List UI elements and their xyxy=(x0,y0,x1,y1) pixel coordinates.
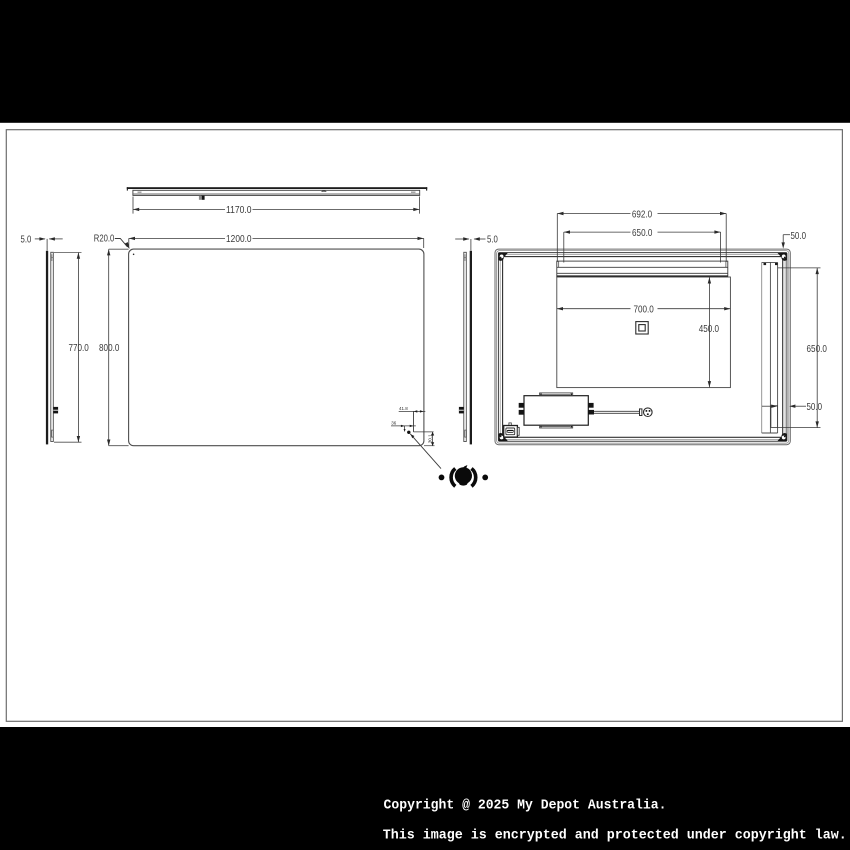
svg-text:1170.0: 1170.0 xyxy=(226,205,252,216)
svg-text:30.1: 30.1 xyxy=(428,434,433,443)
svg-text:Copyright @ 2025 My Depot Aust: Copyright @ 2025 My Depot Australia. xyxy=(384,799,667,814)
svg-text:770.0: 770.0 xyxy=(68,343,89,354)
svg-text:650.0: 650.0 xyxy=(632,228,653,239)
svg-text:R20.0: R20.0 xyxy=(94,233,115,244)
svg-text:50.0: 50.0 xyxy=(807,402,823,413)
svg-text:800.0: 800.0 xyxy=(99,343,120,354)
svg-text:This image is encrypted and pr: This image is encrypted and protected un… xyxy=(383,829,847,844)
svg-text:50.0: 50.0 xyxy=(791,231,807,242)
svg-text:36: 36 xyxy=(391,421,397,426)
svg-text:692.0: 692.0 xyxy=(632,209,653,220)
svg-text:5.0: 5.0 xyxy=(21,235,32,246)
svg-text:700.0: 700.0 xyxy=(633,304,654,315)
svg-text:450.0: 450.0 xyxy=(699,324,720,335)
svg-text:650.0: 650.0 xyxy=(807,344,828,355)
svg-text:5.0: 5.0 xyxy=(487,235,498,246)
svg-text:41.8: 41.8 xyxy=(399,406,408,411)
svg-text:1200.0: 1200.0 xyxy=(226,234,252,245)
